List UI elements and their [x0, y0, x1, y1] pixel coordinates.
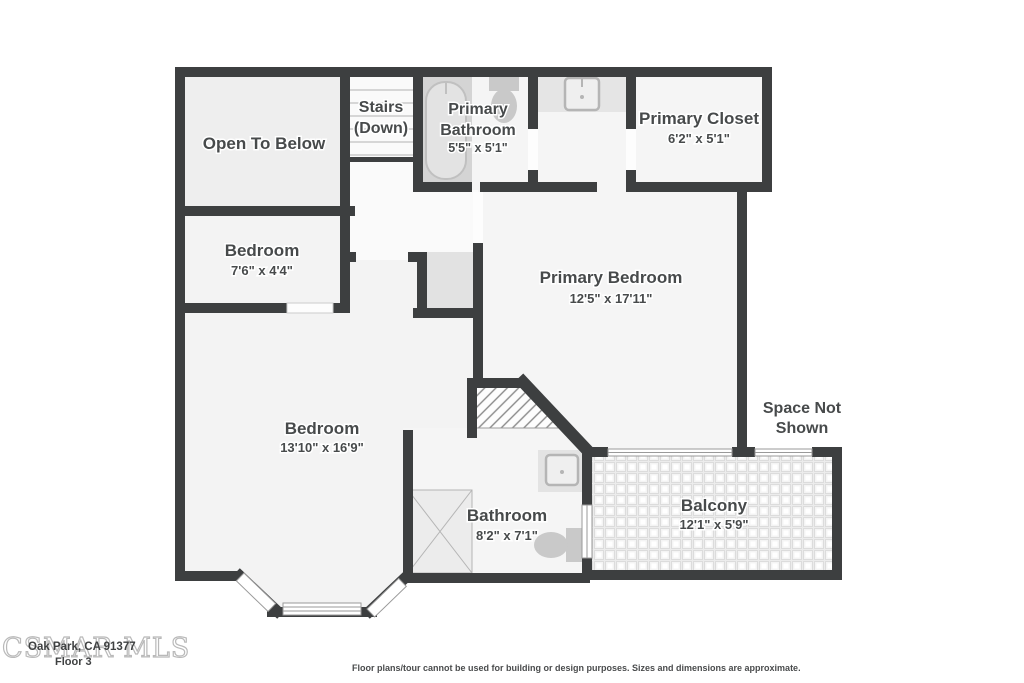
small-bedroom-label: Bedroom	[225, 241, 300, 260]
primary-bedroom-label: Primary Bedroom	[540, 268, 683, 287]
large-bedroom-dims: 13'10" x 16'9"	[280, 440, 364, 455]
wall	[333, 303, 350, 313]
stairs-label-line1: Stairs	[359, 99, 404, 116]
primary-bathroom-dims: 5'5" x 5'1"	[448, 141, 508, 155]
floor-label: Floor 3	[55, 656, 92, 668]
primary-bathroom-label-line1: Primary	[448, 101, 508, 118]
bathroom-dims: 8'2" x 7'1"	[476, 528, 538, 543]
wall	[528, 67, 538, 129]
primary-bedroom-door-opening	[473, 192, 483, 243]
wall	[175, 67, 185, 581]
small-bedroom-dims: 7'6" x 4'4"	[231, 263, 293, 278]
stairs-edge	[348, 157, 418, 162]
large-bedroom-label: Bedroom	[285, 419, 360, 438]
stairs-floor	[345, 72, 418, 162]
balcony-dims: 12'1" x 5'9"	[679, 517, 748, 532]
wall	[762, 67, 772, 190]
wall	[582, 570, 842, 580]
balcony-door	[582, 505, 592, 558]
wall	[626, 67, 636, 129]
bathroom-label: Bathroom	[467, 506, 547, 525]
disclaimer-text: Floor plans/tour cannot be used for buil…	[352, 663, 801, 673]
wall	[832, 447, 842, 580]
vanity-sink-drain	[580, 95, 584, 99]
bedroom-door-opening	[287, 303, 333, 313]
bathroom-door-opening	[528, 129, 538, 170]
primary-closet-label: Primary Closet	[639, 109, 759, 128]
toilet2-bowl-icon	[534, 532, 568, 558]
wall	[737, 182, 747, 455]
wall	[417, 252, 427, 318]
wall	[627, 182, 772, 192]
balcony-label: Balcony	[681, 496, 748, 515]
stairs-label-line2: (Down)	[354, 120, 408, 137]
primary-closet-dims: 6'2" x 5'1"	[668, 131, 730, 146]
wall	[480, 182, 597, 192]
bathroom-sink-drain	[560, 470, 564, 474]
wall	[413, 67, 423, 192]
wall	[403, 430, 413, 583]
wall	[413, 182, 472, 192]
wall	[473, 243, 483, 383]
sliding-door	[608, 449, 732, 456]
wall	[175, 303, 287, 313]
wall	[467, 378, 477, 438]
primary-bedroom-dims: 12'5" x 17'11"	[570, 291, 653, 306]
address-text: Oak Park, CA 91377	[28, 641, 136, 653]
wall	[175, 206, 355, 216]
wall	[732, 447, 755, 457]
wall	[403, 573, 590, 583]
floorplan-page: Open To Below Stairs (Down) Primary Bath…	[0, 0, 1024, 683]
wall	[340, 67, 350, 313]
balcony-window	[755, 449, 812, 456]
shower-icon	[408, 490, 472, 573]
wall	[582, 447, 592, 505]
toilet-tank-icon	[489, 76, 519, 91]
floorplan-svg: Open To Below Stairs (Down) Primary Bath…	[0, 0, 1024, 683]
wall	[340, 252, 356, 262]
open-to-below-label: Open To Below	[203, 134, 326, 153]
toilet2-tank-icon	[566, 528, 582, 562]
space-not-shown-label-line2: Shown	[776, 420, 828, 437]
space-not-shown-label-line1: Space Not	[763, 400, 842, 417]
closet-door-opening	[626, 129, 636, 170]
wall	[175, 67, 772, 77]
primary-bathroom-label-line2: Bathroom	[440, 122, 516, 139]
